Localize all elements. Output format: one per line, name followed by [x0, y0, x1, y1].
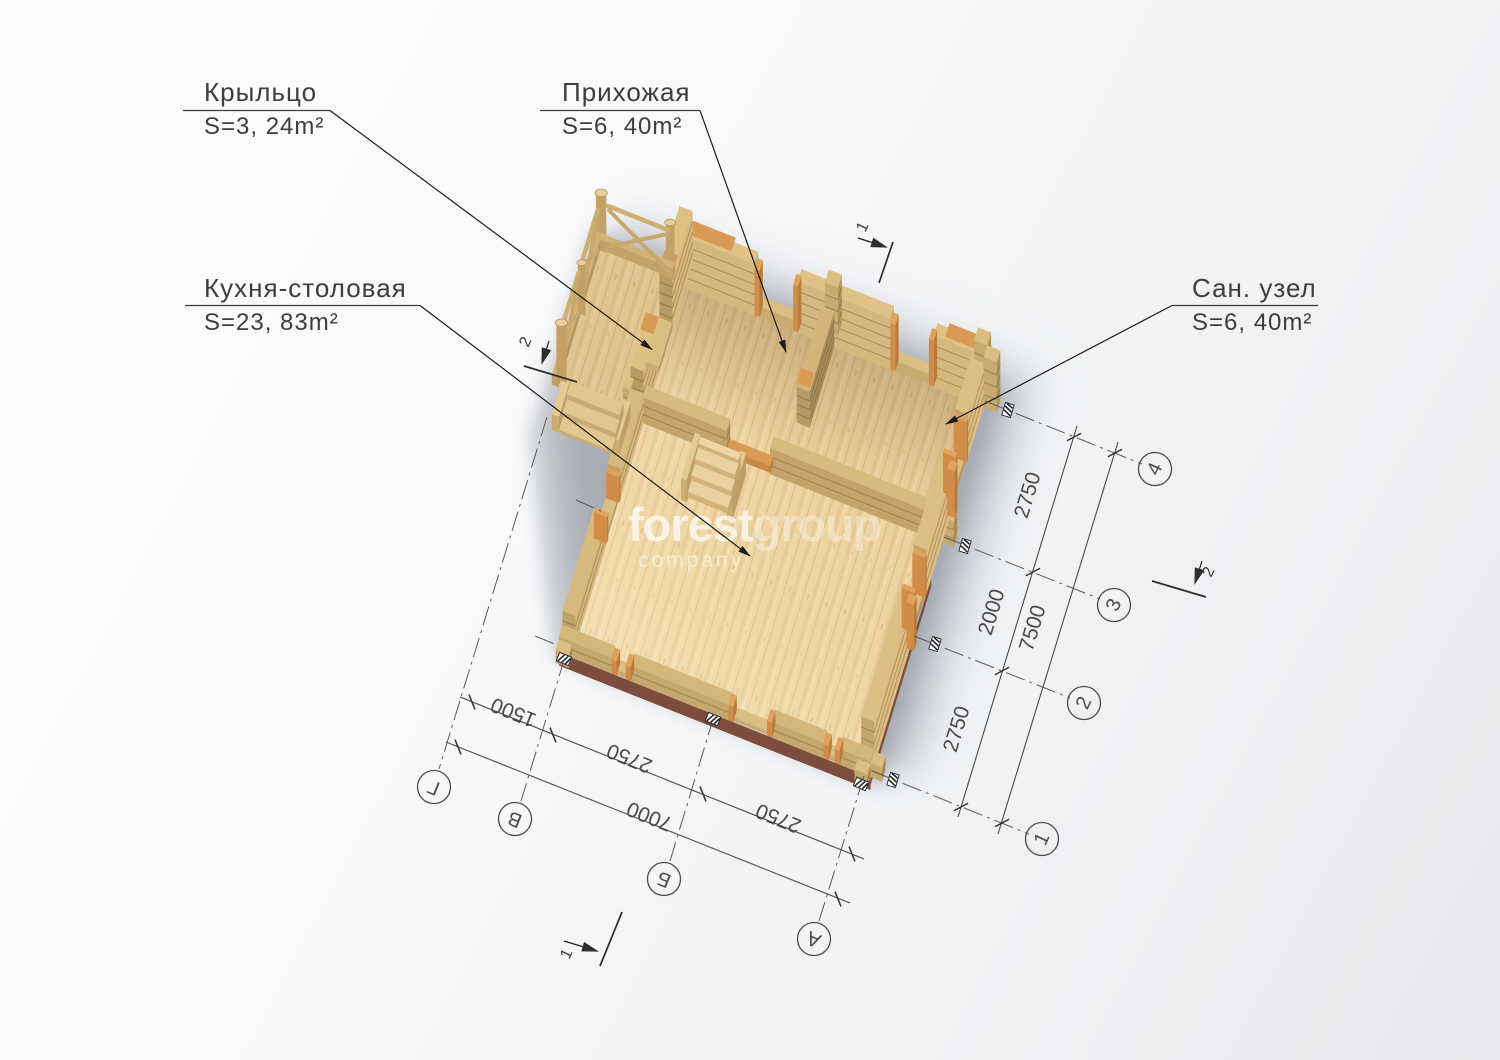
axis-bubble-B: Б — [648, 863, 681, 896]
dim-value: 2750 — [1010, 469, 1046, 520]
svg-text:forestgroup: forestgroup — [628, 498, 881, 551]
room-name: Кухня-столовая — [204, 273, 407, 303]
svg-text:Б: Б — [654, 866, 674, 891]
axis-bubble-V: В — [499, 803, 532, 836]
svg-text:1: 1 — [853, 219, 872, 234]
room-name: Прихожая — [562, 77, 690, 107]
svg-text:2: 2 — [1199, 564, 1218, 579]
dim-total: 7000 — [624, 797, 676, 836]
dim-total: 7500 — [1015, 602, 1051, 653]
axis-bubble-3: 3 — [1098, 589, 1131, 622]
svg-text:1: 1 — [1030, 829, 1055, 848]
section-mark-1-top: 1 — [853, 219, 893, 283]
dim-value: 2750 — [604, 739, 656, 778]
grid-line-B — [670, 716, 714, 861]
axis-bubble-1: 1 — [1026, 823, 1059, 856]
svg-text:4: 4 — [1143, 459, 1168, 478]
room-area: S=6, 40m² — [562, 113, 682, 140]
floor-plan-screenshot: forestgroup company Крыльцо S=3, 24m² Пр… — [0, 0, 1500, 1060]
svg-text:В: В — [505, 806, 526, 831]
room-name: Сан. узел — [1192, 273, 1317, 303]
svg-text:3: 3 — [1102, 595, 1127, 614]
room-name: Крыльцо — [204, 77, 317, 107]
watermark-primary: forest — [628, 498, 754, 551]
svg-text:2: 2 — [1072, 693, 1097, 712]
svg-text:2: 2 — [516, 334, 535, 349]
axis-bubble-2: 2 — [1068, 687, 1101, 720]
axis-bubble-4: 4 — [1139, 453, 1172, 486]
watermark-secondary: group — [753, 498, 881, 551]
floor-plan-canvas: forestgroup company Крыльцо S=3, 24m² Пр… — [0, 0, 1500, 1060]
watermark-tagline: company — [638, 549, 744, 572]
svg-text:Г: Г — [425, 775, 443, 800]
svg-text:А: А — [803, 926, 824, 952]
svg-text:1: 1 — [557, 946, 576, 961]
axis-bubble-A: А — [798, 923, 831, 956]
dim-value: 2000 — [974, 586, 1010, 637]
axis-bubble-G: Г — [418, 771, 451, 804]
dim-value: 2750 — [939, 703, 975, 754]
section-mark-2-right: 2 — [1152, 561, 1219, 597]
room-area: S=23, 83m² — [204, 309, 339, 336]
axis-base-mark — [887, 772, 899, 787]
room-area: S=6, 40m² — [1192, 309, 1312, 336]
dim-value: 2750 — [753, 799, 805, 838]
dim-value: 1500 — [488, 693, 540, 732]
section-mark-1-bottom: 1 — [557, 912, 622, 966]
room-area: S=3, 24m² — [204, 113, 324, 140]
